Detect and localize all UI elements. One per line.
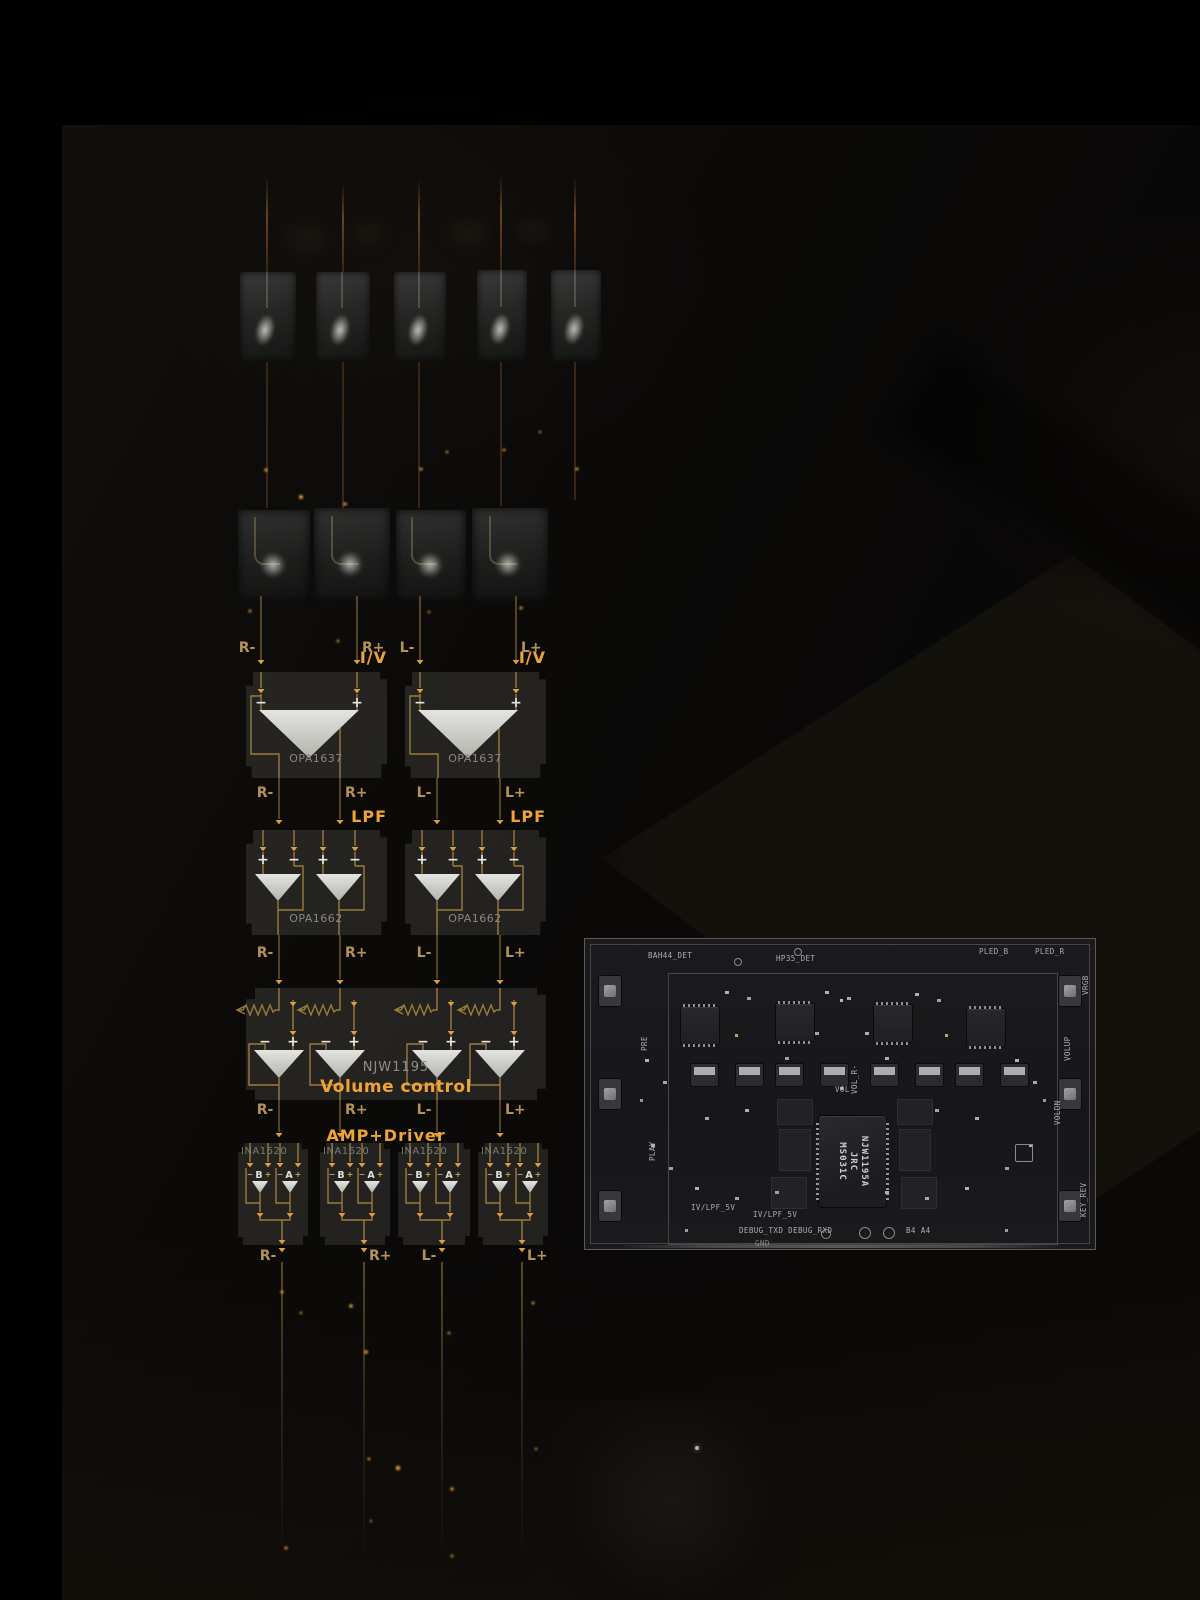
signal-chain-wires: − + − + + − + −	[220, 140, 620, 1600]
opamp-triangle	[316, 874, 362, 901]
pcb-smd-chip	[821, 1064, 848, 1086]
opamp-minus-input: −	[517, 1170, 524, 1179]
pcb-smd-chip	[736, 1064, 763, 1086]
signal-label-l-plus: L+	[505, 946, 526, 960]
opamp-plus-input: +	[265, 1170, 272, 1179]
pcb-smd-chip	[871, 1064, 898, 1086]
opamp-plus-input: +	[257, 852, 269, 868]
pcb-opamp-chip	[874, 1005, 912, 1042]
pcb-edge-glint	[616, 1245, 1065, 1248]
lpf-chip-name: OPA1662	[448, 912, 502, 925]
opamp-triangle	[259, 710, 359, 758]
signal-label-l-plus: L+	[505, 1103, 526, 1117]
opamp-plus-input: +	[425, 1170, 432, 1179]
opamp-triangle	[475, 1050, 525, 1078]
opamp-minus-input: −	[320, 1034, 332, 1050]
signal-label-r-plus: R+	[362, 641, 385, 655]
test-point	[734, 958, 742, 966]
ina-channel-b: B	[415, 1170, 422, 1181]
tactile-switch	[599, 976, 621, 1006]
pcb-photo-inset: NJW1195A JRC MS031C BAH44_DET HP35_DET P…	[584, 938, 1096, 1250]
pcb-capacitor	[777, 1099, 813, 1125]
opamp-triangle	[254, 1050, 304, 1078]
opamp-minus-input: −	[349, 852, 361, 868]
pcb-label-ivlpf-2: IV/LPF_5V	[753, 1210, 797, 1219]
main-chip-line1: NJW1195A	[858, 1136, 869, 1187]
test-point	[883, 1227, 895, 1239]
opamp-plus-input: +	[535, 1170, 542, 1179]
pcb-smd-chip	[776, 1064, 803, 1086]
pcb-capacitor	[899, 1129, 931, 1171]
pcb-label-play: PLAY	[648, 1141, 657, 1161]
opamp-minus-input: −	[407, 1170, 414, 1179]
pcb-opamp-chip	[967, 1009, 1005, 1046]
signal-label-r-minus: R-	[239, 641, 256, 655]
signal-label-r-plus: R+	[345, 1103, 368, 1117]
pcb-capacitor	[901, 1177, 937, 1209]
signal-label-l-plus: L+	[521, 641, 542, 655]
ina-channel-a: A	[285, 1170, 293, 1181]
pcb-capacitor	[771, 1177, 807, 1209]
lpf-stage-label: LPF	[351, 809, 387, 825]
pcb-passive-components-gold	[585, 939, 588, 942]
pcb-label-vrgb: VRGB	[1081, 975, 1090, 995]
amp-stage-label: AMP+Driver	[326, 1126, 445, 1145]
tactile-switch	[1059, 976, 1081, 1006]
opamp-minus-input: −	[480, 1034, 492, 1050]
haze-top-right	[942, 205, 1200, 665]
signal-label-r-plus: R+	[345, 786, 368, 800]
opamp-plus-input: +	[377, 1170, 384, 1179]
tactile-switch	[599, 1191, 621, 1221]
opamp-minus-input: −	[487, 1170, 494, 1179]
opamp-plus-input: +	[505, 1170, 512, 1179]
signal-label-r-minus: R-	[257, 786, 274, 800]
pcb-label-b4a4: B4 A4	[906, 1226, 931, 1235]
ina-channel-b: B	[337, 1170, 344, 1181]
iv-chip-name: OPA1637	[289, 752, 343, 765]
signal-label-r-minus: R-	[257, 1103, 274, 1117]
opamp-minus-input: −	[277, 1170, 284, 1179]
pcb-label-vol: VOL	[835, 1085, 850, 1094]
opamp-plus-input: +	[510, 695, 522, 711]
opamp-plus-input: +	[295, 1170, 302, 1179]
test-point	[859, 1227, 871, 1239]
opamp-minus-input: −	[259, 1034, 271, 1050]
opamp-triangle	[414, 874, 460, 901]
opamp-plus-input: +	[287, 1034, 299, 1050]
signal-label-r-plus: R+	[369, 1249, 392, 1263]
opamp-minus-input: −	[417, 1034, 429, 1050]
pcb-label-key-rev: KEY_REV	[1079, 1183, 1088, 1217]
amp-chip-name: INA1620	[241, 1146, 287, 1157]
pcb-label-hp35-det: HP35_DET	[776, 954, 815, 963]
hero-canvas: − + − + + − + −	[0, 0, 1200, 1600]
pcb-pad	[1015, 1144, 1033, 1162]
amp-chip-name: INA1620	[481, 1146, 527, 1157]
tactile-switch	[1059, 1079, 1081, 1109]
capacitor-leads-lower	[267, 362, 575, 508]
pcb-label-vol-r: VOL_R-	[850, 1065, 859, 1095]
opamp-minus-input: −	[437, 1170, 444, 1179]
pcb-smd-chip	[1001, 1064, 1028, 1086]
opamp-minus-input: −	[447, 852, 459, 868]
amp-driver-channels: − B + − A + − B + − A + −	[246, 1143, 541, 1244]
ina-channel-b: B	[495, 1170, 502, 1181]
opamp-triangle	[255, 874, 301, 901]
signal-label-r-plus: R+	[345, 946, 368, 960]
light-speck	[695, 1446, 699, 1450]
signal-label-r-minus: R-	[257, 946, 274, 960]
opamp-minus-input: −	[255, 695, 267, 711]
ina-channel-a: A	[367, 1170, 375, 1181]
opamp-minus-input: −	[247, 1170, 254, 1179]
volume-stage-label: Volume control	[320, 1077, 472, 1097]
opamp-minus-input: −	[414, 695, 426, 711]
signal-label-l-minus: L-	[417, 946, 432, 960]
ina-channel-a: A	[445, 1170, 453, 1181]
opamp-minus-input: −	[329, 1170, 336, 1179]
opamp-plus-input: +	[348, 1034, 360, 1050]
pcb-label-pre: PRE	[640, 1036, 649, 1051]
pcb-main-chip: NJW1195A JRC MS031C	[819, 1116, 886, 1207]
signal-label-l-minus: L-	[417, 786, 432, 800]
opamp-triangle	[418, 710, 518, 758]
iv-chip-name: OPA1637	[448, 752, 502, 765]
pcb-label-volup: VOLUP	[1063, 1036, 1072, 1061]
main-chip-line3: MS031C	[836, 1136, 847, 1187]
signal-label-r-minus: R-	[260, 1249, 277, 1263]
lpf-chip-name: OPA1662	[289, 912, 343, 925]
pcb-smd-chip	[956, 1064, 983, 1086]
volume-chip-label: NJW1195	[363, 1060, 430, 1075]
pcb-capacitor	[897, 1099, 933, 1125]
opamp-plus-input: +	[455, 1170, 462, 1179]
lpf-stage-label: LPF	[510, 809, 546, 825]
amp-chip-name: INA1620	[323, 1146, 369, 1157]
pcb-smd-chip	[916, 1064, 943, 1086]
main-chip-line2: JRC	[847, 1136, 858, 1187]
pcb-smd-chip	[691, 1064, 718, 1086]
tactile-switch	[599, 1079, 621, 1109]
opamp-triangle	[315, 1050, 365, 1078]
pcb-label-debug: DEBUG_TXD DEBUG_RXD	[739, 1226, 832, 1235]
ina-channel-a: A	[525, 1170, 533, 1181]
opamp-minus-input: −	[288, 852, 300, 868]
signal-label-l-minus: L-	[417, 1103, 432, 1117]
opamp-minus-input: −	[508, 852, 520, 868]
opamp-plus-input: +	[317, 852, 329, 868]
opamp-plus-input: +	[445, 1034, 457, 1050]
opamp-minus-input: −	[359, 1170, 366, 1179]
pcb-opamp-chip	[776, 1004, 814, 1041]
pcb-label-voldn: VOLDN	[1053, 1100, 1062, 1125]
tactile-switch	[1059, 1191, 1081, 1221]
pcb-label-ivlpf-1: IV/LPF_5V	[691, 1203, 735, 1212]
opamp-plus-input: +	[476, 852, 488, 868]
opamp-plus-input: +	[351, 695, 363, 711]
wire-sparkles	[249, 431, 579, 1558]
pcb-opamp-chip	[681, 1007, 719, 1044]
pcb-capacitor	[779, 1129, 811, 1171]
signal-label-l-minus: L-	[400, 641, 415, 655]
pcb-label-bah44-det: BAH44_DET	[648, 951, 692, 960]
signal-label-l-minus: L-	[422, 1249, 437, 1263]
signal-label-l-plus: L+	[505, 786, 526, 800]
opamp-plus-input: +	[347, 1170, 354, 1179]
ina-channel-b: B	[255, 1170, 262, 1181]
amp-chip-name: INA1620	[401, 1146, 447, 1157]
opamp-triangle	[475, 874, 521, 901]
opamp-plus-input: +	[508, 1034, 520, 1050]
signal-label-l-plus: L+	[527, 1249, 548, 1263]
pcb-label-pled-r: PLED_R	[1035, 947, 1065, 956]
opamp-plus-input: +	[416, 852, 428, 868]
pcb-label-pled-b: PLED_B	[979, 947, 1009, 956]
